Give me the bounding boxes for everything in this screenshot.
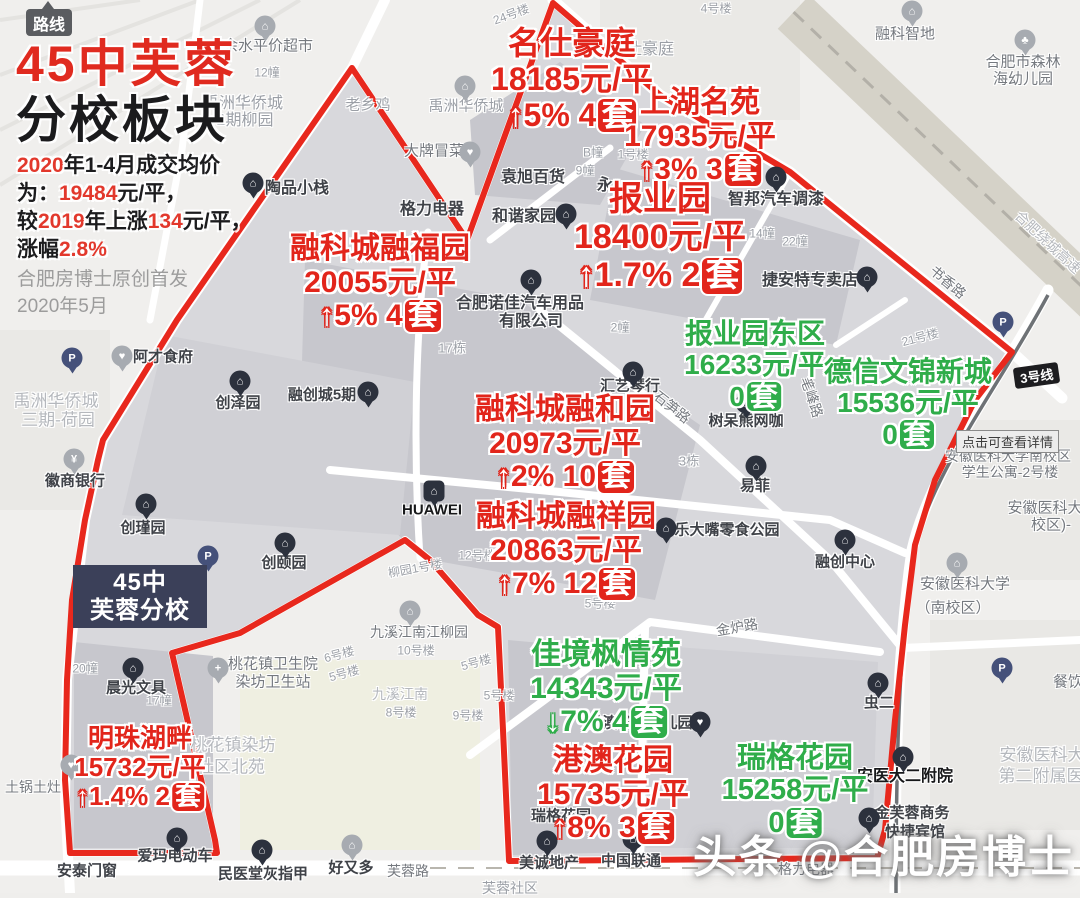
map-label: （南校区） [915,597,990,618]
up-arrow-icon: ↑ [508,97,524,133]
estate-change-line: ↑1.7% 2套 [574,256,746,294]
building-pin-icon[interactable]: ⌂ [868,673,889,694]
building-pin-icon[interactable]: ⌂ [123,658,144,679]
estate-name: 港澳花园 [537,744,689,778]
up-arrow-icon: ↑ [497,567,512,600]
map-label: 老乡鸡 [345,94,390,115]
school-name-line1: 45中 [113,569,167,597]
summary-line: 涨幅2.8% [17,236,252,264]
estate-annotation: 融科城融祥园20863元/平↑7% 12套 [476,500,656,601]
unit-badge: 套 [172,783,204,810]
map-label: 三期-荷园 [21,406,95,431]
food-pin-icon[interactable]: ♥ [112,346,133,367]
building-pin-icon[interactable]: ⌂ [342,835,363,856]
estate-name: 德信文锦新城 [824,356,992,387]
building-pin-icon[interactable]: ⌂ [656,518,677,539]
estate-name: 明珠湖畔 [74,724,206,753]
estate-annotation: 上湖名苑17935元/平↑3% 3套 [624,86,776,187]
map-label: 学生公寓-2号楼 [962,462,1058,482]
parking-pin-icon[interactable]: P [198,546,219,567]
map-label: 芙蓉路 [387,861,429,881]
parking-pin-icon[interactable]: P [992,658,1013,679]
up-arrow-icon: ↑ [496,460,511,493]
map-label: 4号楼 [701,0,732,17]
map-label: 9号楼 [453,707,484,724]
supermarket-pin-icon[interactable]: ⌂ [255,16,276,37]
estate-annotation: 佳境枫情苑14343元/平↓7% 4套 [530,638,682,739]
summary-line: 较2019年上涨134元/平， [17,208,252,236]
map-label: 大牌冒菜 [404,140,464,161]
unit-badge: 套 [702,258,742,294]
estate-name: 瑞格花园 [722,742,869,774]
down-arrow-icon: ↓ [545,705,560,738]
watermark: 头条 @合肥房博士 [693,821,1074,885]
unit-badge: 套 [631,706,667,738]
school-45-furong-box: 45中 芙蓉分校 [73,565,207,628]
map-label: 社区北苑 [197,753,265,778]
estate-annotation: 报业园东区16233元/平0套 [684,318,826,412]
building-pin-icon[interactable]: ⌂ [746,456,767,477]
unit-badge: 套 [747,382,781,411]
map-label: 金芙蓉商务 [874,802,949,823]
building-pin-icon[interactable]: ⌂ [623,362,644,383]
map-label: 22幢 [782,233,807,250]
up-arrow-icon: ↑ [578,256,595,294]
estate-annotation: 融科城融和园20973元/平↑2% 10套 [475,393,655,494]
estate-change-line: ↑8% 3套 [537,811,689,845]
estate-name: 报业园东区 [684,318,826,349]
huawei-store-pin-icon[interactable]: ⌂ [424,481,445,502]
map-label: 安徽医科大学 [920,573,1010,594]
map-label: 九溪江南江柳园 [370,622,468,642]
map-label: 芙蓉社区 [482,878,538,898]
map-label: 捷安特专卖店 [762,266,858,290]
map-label: 20幢 [72,660,97,677]
map-label: 融科智地 [875,23,935,44]
map-screenshot: { "colors": {"red":"#e2251b","green":"#2… [0,0,1080,893]
estate-name: 融科城融福园 [290,232,470,266]
map-label: 阿才食府 [133,346,193,367]
map-label: 融创城5期 [288,384,356,405]
building-pin-icon[interactable]: ⌂ [230,371,251,392]
price-summary: 2020年1-4月成交均价为：19484元/平，较2019年上涨134元/平，涨… [17,152,252,264]
building-pin-icon[interactable]: ⌂ [275,533,296,554]
parking-pin-icon[interactable]: P [993,312,1014,333]
estate-change-line: 0套 [684,381,826,412]
map-label: 有限公司 [499,307,563,331]
map-label: 3栋 [679,451,699,470]
estate-change-line: ↑5% 4套 [290,299,470,333]
map-label: 土锅土灶 [5,777,61,797]
estate-change-line: ↑7% 12套 [476,567,656,601]
estate-price: 15735元/平 [537,778,689,812]
map-label: 袁旭百货 [501,163,565,187]
map-label: 校区)- [1031,514,1071,535]
estate-price: 15536元/平 [824,387,992,418]
map-label: 9幢 [576,162,595,179]
up-arrow-icon: ↑ [552,811,567,844]
map-label: 第二附属医 [999,762,1080,787]
unit-badge: 套 [405,300,441,332]
up-arrow-icon: ↑ [76,781,89,811]
estate-name: 报业园 [574,180,746,218]
unit-badge: 套 [599,568,635,600]
estate-name: 上湖名苑 [624,86,776,120]
map-label: 14幢 [749,225,774,242]
estate-price: 15732元/平 [74,753,206,782]
building-pin-icon[interactable]: ⌂ [252,840,273,861]
estate-price: 20863元/平 [476,534,656,568]
map-label: 5号楼 [484,687,515,704]
estate-name: 佳境枫情苑 [530,638,682,672]
up-arrow-icon: ↑ [319,299,334,332]
estate-change-line: ↓7% 4套 [530,705,682,739]
estate-name: 名仕豪庭 [491,26,653,62]
estate-price: 16233元/平 [684,349,826,380]
unit-badge: 套 [638,812,674,844]
estate-price: 20055元/平 [290,266,470,300]
estate-annotation: 报业园18400元/平↑1.7% 2套 [574,180,746,294]
map-label: 染坊卫生站 [235,671,310,692]
building-pin-icon[interactable]: ⌂ [358,382,379,403]
map-label: 和谐家园 [492,202,556,226]
estate-annotation: 明珠湖畔15732元/平↑1.4% 2套 [74,724,206,811]
bank-pin-icon[interactable]: ¥ [64,449,85,470]
map-label: 餐饮 [1053,671,1080,692]
summary-line: 为：19484元/平， [17,180,252,208]
map-label: 创瑾园 [120,517,165,538]
estate-change-line: ↑1.4% 2套 [74,782,206,811]
map-label: 九溪江南 [372,684,428,704]
food-pin-icon[interactable]: ♥ [460,142,481,163]
map-label: 10号楼 [397,642,434,659]
estate-annotation: 港澳花园15735元/平↑8% 3套 [537,744,689,845]
building-pin-icon[interactable]: ⌂ [167,828,188,849]
building-pin-icon[interactable]: ⌂ [455,76,476,97]
parking-pin-icon[interactable]: P [62,348,83,369]
estate-change-line: ↑2% 10套 [475,460,655,494]
map-label: 乐大嘴零食公园 [674,519,779,540]
estate-name: 融科城融祥园 [476,500,656,534]
building-pin-icon[interactable]: ⌂ [902,1,923,22]
estate-name: 融科城融和园 [475,393,655,427]
map-label: 格力电器 [400,195,464,219]
school-name-line2: 芙蓉分校 [90,597,190,625]
map-label: 17栋 [438,338,465,357]
estate-price: 20973元/平 [475,427,655,461]
map-label: 海幼儿园 [993,68,1053,89]
map-label: 12幢 [254,64,279,81]
page-title-black: 分校板块 [16,80,228,152]
estate-price: 15258元/平 [722,774,869,806]
building-pin-icon[interactable]: ⌂ [400,601,421,622]
map-label: 民医堂灰指甲 [218,863,308,884]
estate-price: 17935元/平 [624,120,776,154]
building-pin-icon[interactable]: ⌂ [136,494,157,515]
kindergarten-pin-icon[interactable]: ♥ [690,712,711,733]
building-pin-icon[interactable]: ⌂ [835,530,856,551]
map-label: 安泰门窗 [57,860,117,881]
map-label: 8号楼 [386,704,417,721]
estate-annotation: 融科城融福园20055元/平↑5% 4套 [290,232,470,333]
credit-line: 合肥房博士原创首发 [17,266,188,293]
estate-price: 18400元/平 [574,218,746,256]
school-pin-icon[interactable]: ⌂ [947,553,968,574]
map-label: B幢 [583,144,603,161]
credit-lines: 合肥房博士原创首发2020年5月 [17,266,188,320]
unit-badge: 套 [598,461,634,493]
building-pin-icon[interactable]: ⌂ [857,267,878,288]
hospital-pin-icon[interactable]: ⌂ [893,747,914,768]
estate-price: 14343元/平 [530,672,682,706]
detail-tooltip[interactable]: 点击可查看详情 [956,430,1059,453]
kindergarten-pin-icon[interactable]: ♣ [1015,30,1036,51]
map-label: 陶品小栈 [265,174,329,198]
map-label: 2幢 [611,319,630,336]
clinic-pin-icon[interactable]: + [208,658,229,679]
unit-badge: 套 [900,420,934,449]
credit-line: 2020年5月 [17,293,188,320]
building-pin-icon[interactable]: ⌂ [521,270,542,291]
summary-line: 2020年1-4月成交均价 [17,152,252,180]
